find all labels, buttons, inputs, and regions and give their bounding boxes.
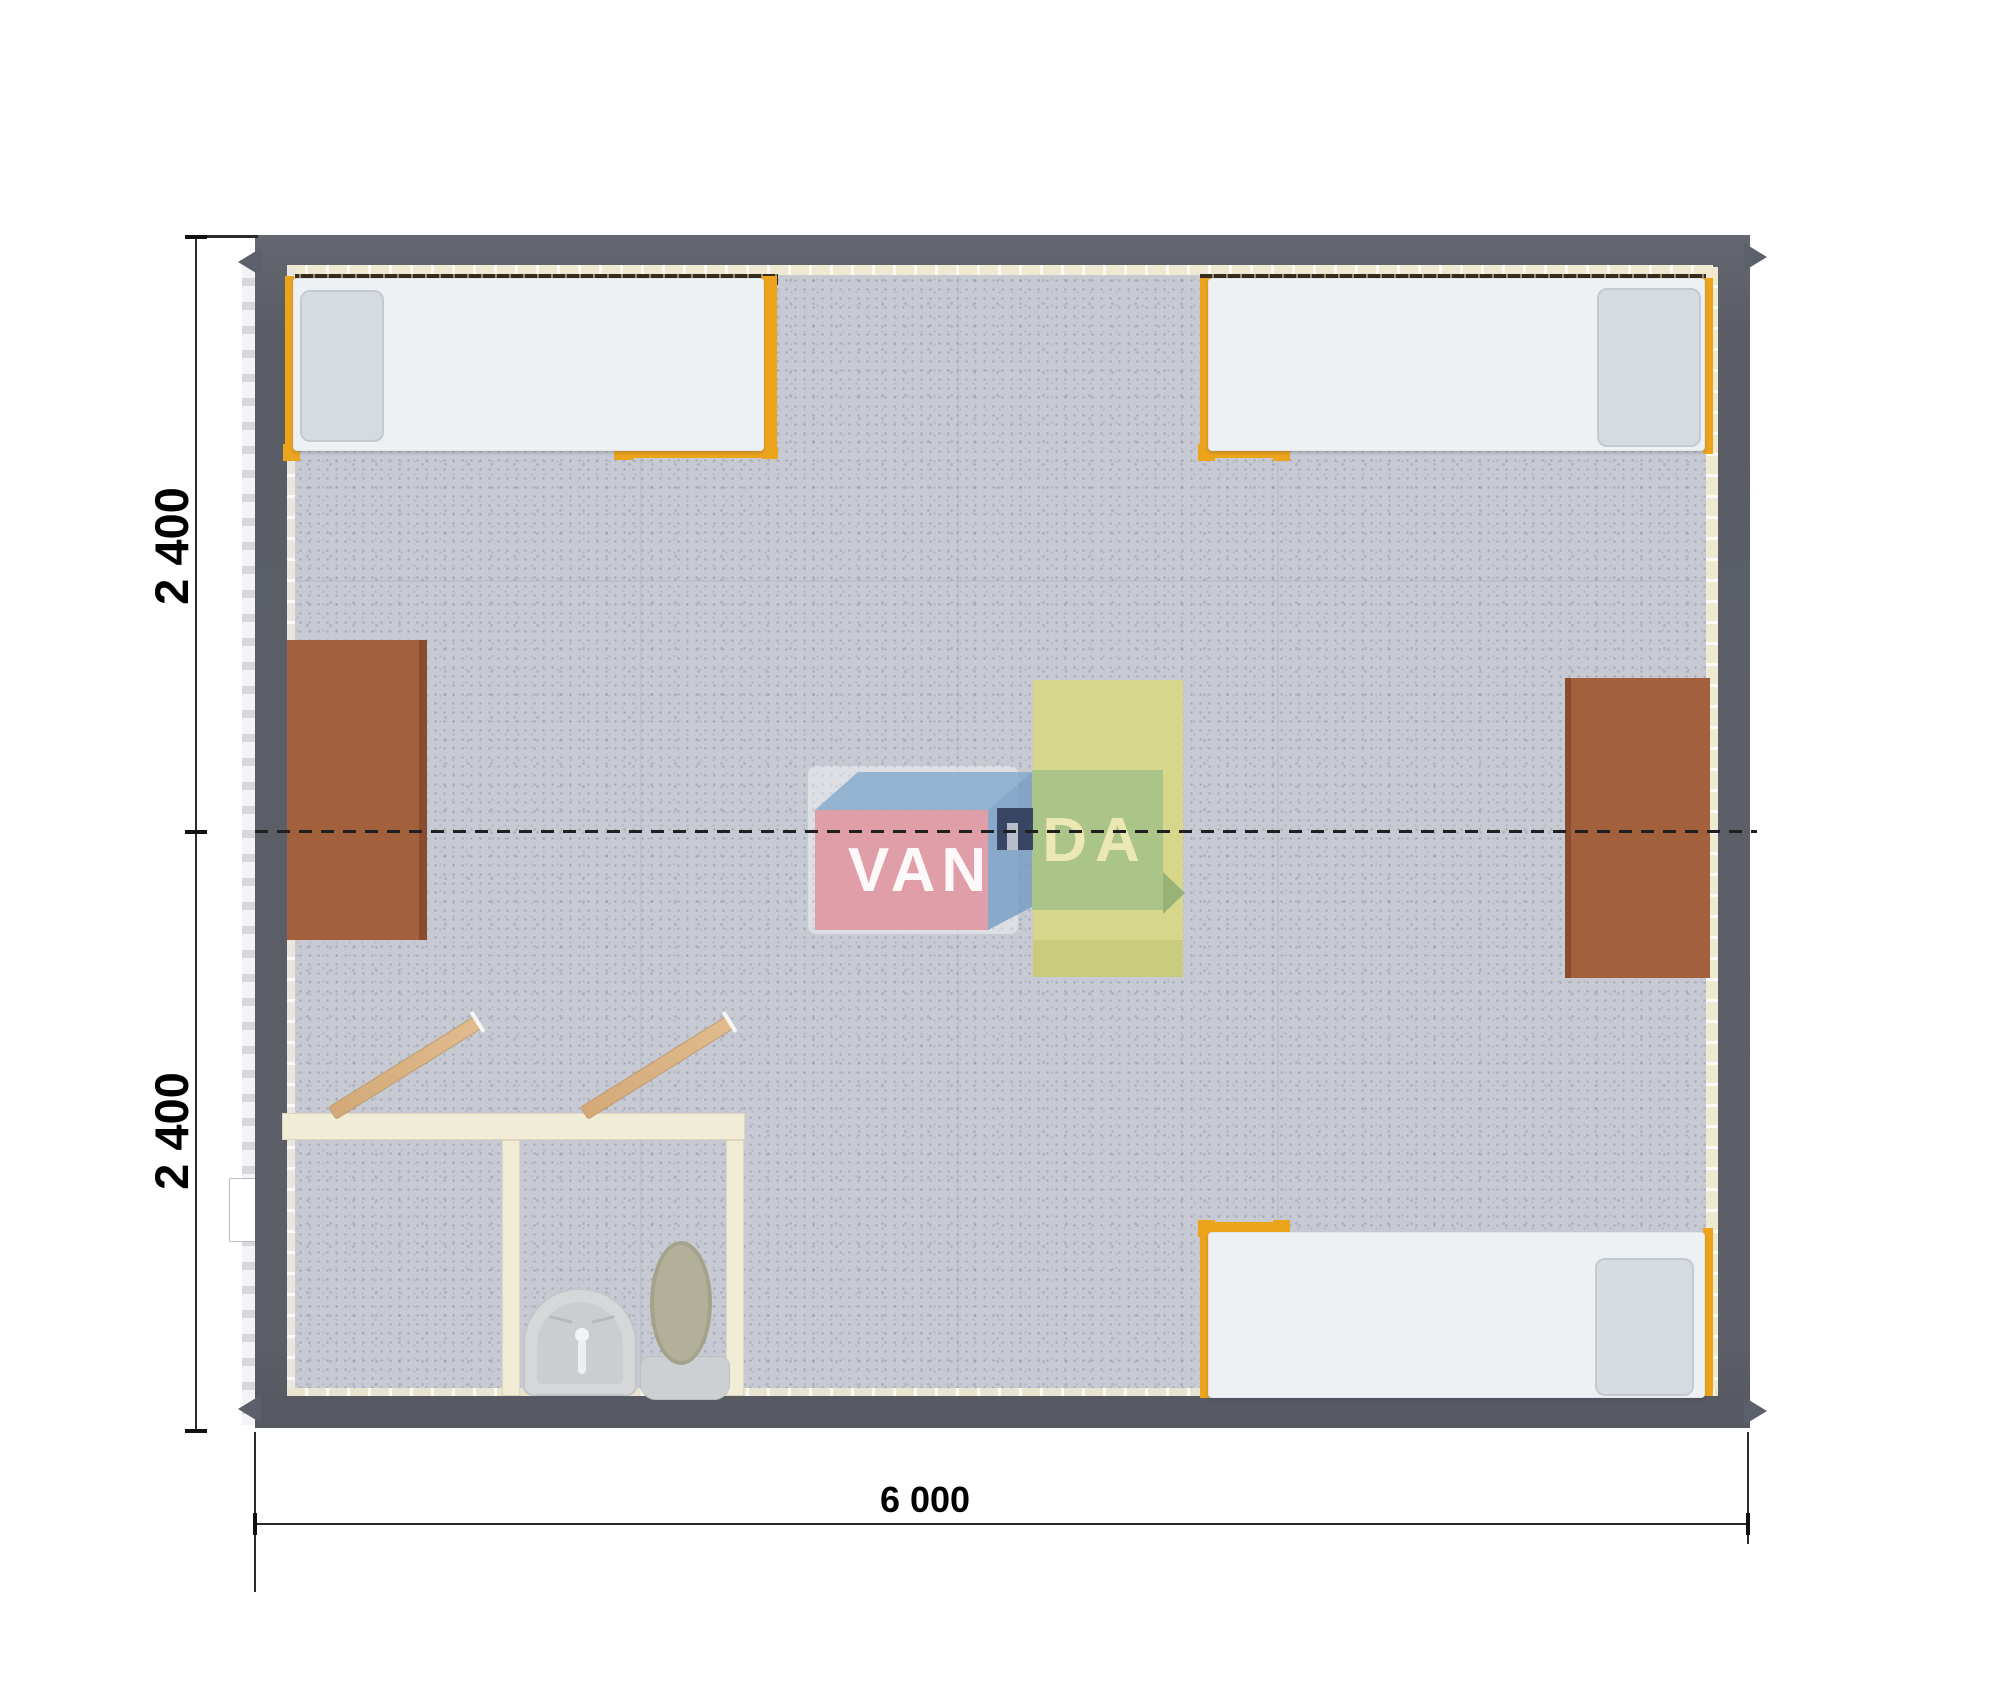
bathroom-partition-wall bbox=[502, 1140, 520, 1396]
toilet-seat bbox=[650, 1241, 712, 1365]
dimension-tick bbox=[185, 1429, 207, 1433]
watermark-text-van: VAN bbox=[820, 825, 1020, 915]
desk-right bbox=[1565, 678, 1710, 978]
floor-plan-page: VAN DA 2 400 2 400 6 000 bbox=[0, 0, 2000, 1701]
left-wall-cladding bbox=[242, 262, 255, 1425]
table-edge bbox=[1033, 940, 1183, 977]
bathroom-wall-right bbox=[726, 1140, 744, 1396]
dimension-line-bottom bbox=[255, 1523, 1749, 1525]
desk-edge bbox=[419, 640, 427, 940]
dimension-label-height-bottom: 2 400 bbox=[146, 1051, 196, 1211]
bathroom-wall-horizontal bbox=[282, 1113, 745, 1140]
corner-arrow-bottom-right bbox=[1744, 1397, 1767, 1425]
corner-arrow-top-right bbox=[1744, 243, 1767, 271]
bed-pillow bbox=[1595, 1258, 1694, 1396]
corner-arrow-bottom-left bbox=[238, 1395, 261, 1423]
bed-frame-rail bbox=[762, 276, 777, 459]
floor-seam bbox=[287, 580, 1718, 582]
bed-pillow bbox=[300, 290, 384, 442]
dimension-label-height-top: 2 400 bbox=[146, 466, 196, 626]
dimension-line-left bbox=[195, 237, 197, 1433]
dimension-tick bbox=[185, 830, 207, 834]
dimension-tick bbox=[1746, 1513, 1750, 1535]
entry-door bbox=[229, 1178, 257, 1242]
dimension-tick bbox=[185, 235, 207, 239]
corner-arrow-top-left bbox=[238, 248, 261, 276]
watermark-text-da: DA bbox=[1035, 785, 1155, 895]
dimension-label-width: 6 000 bbox=[825, 1478, 1025, 1522]
desk-edge bbox=[1565, 678, 1571, 978]
faucet-stem bbox=[578, 1340, 586, 1374]
dimension-tick bbox=[253, 1513, 257, 1535]
section-line bbox=[255, 830, 1757, 833]
dimension-extension-left bbox=[254, 1432, 256, 1592]
sink bbox=[523, 1288, 637, 1396]
desk-left bbox=[287, 640, 427, 940]
bed-pillow bbox=[1597, 288, 1701, 447]
